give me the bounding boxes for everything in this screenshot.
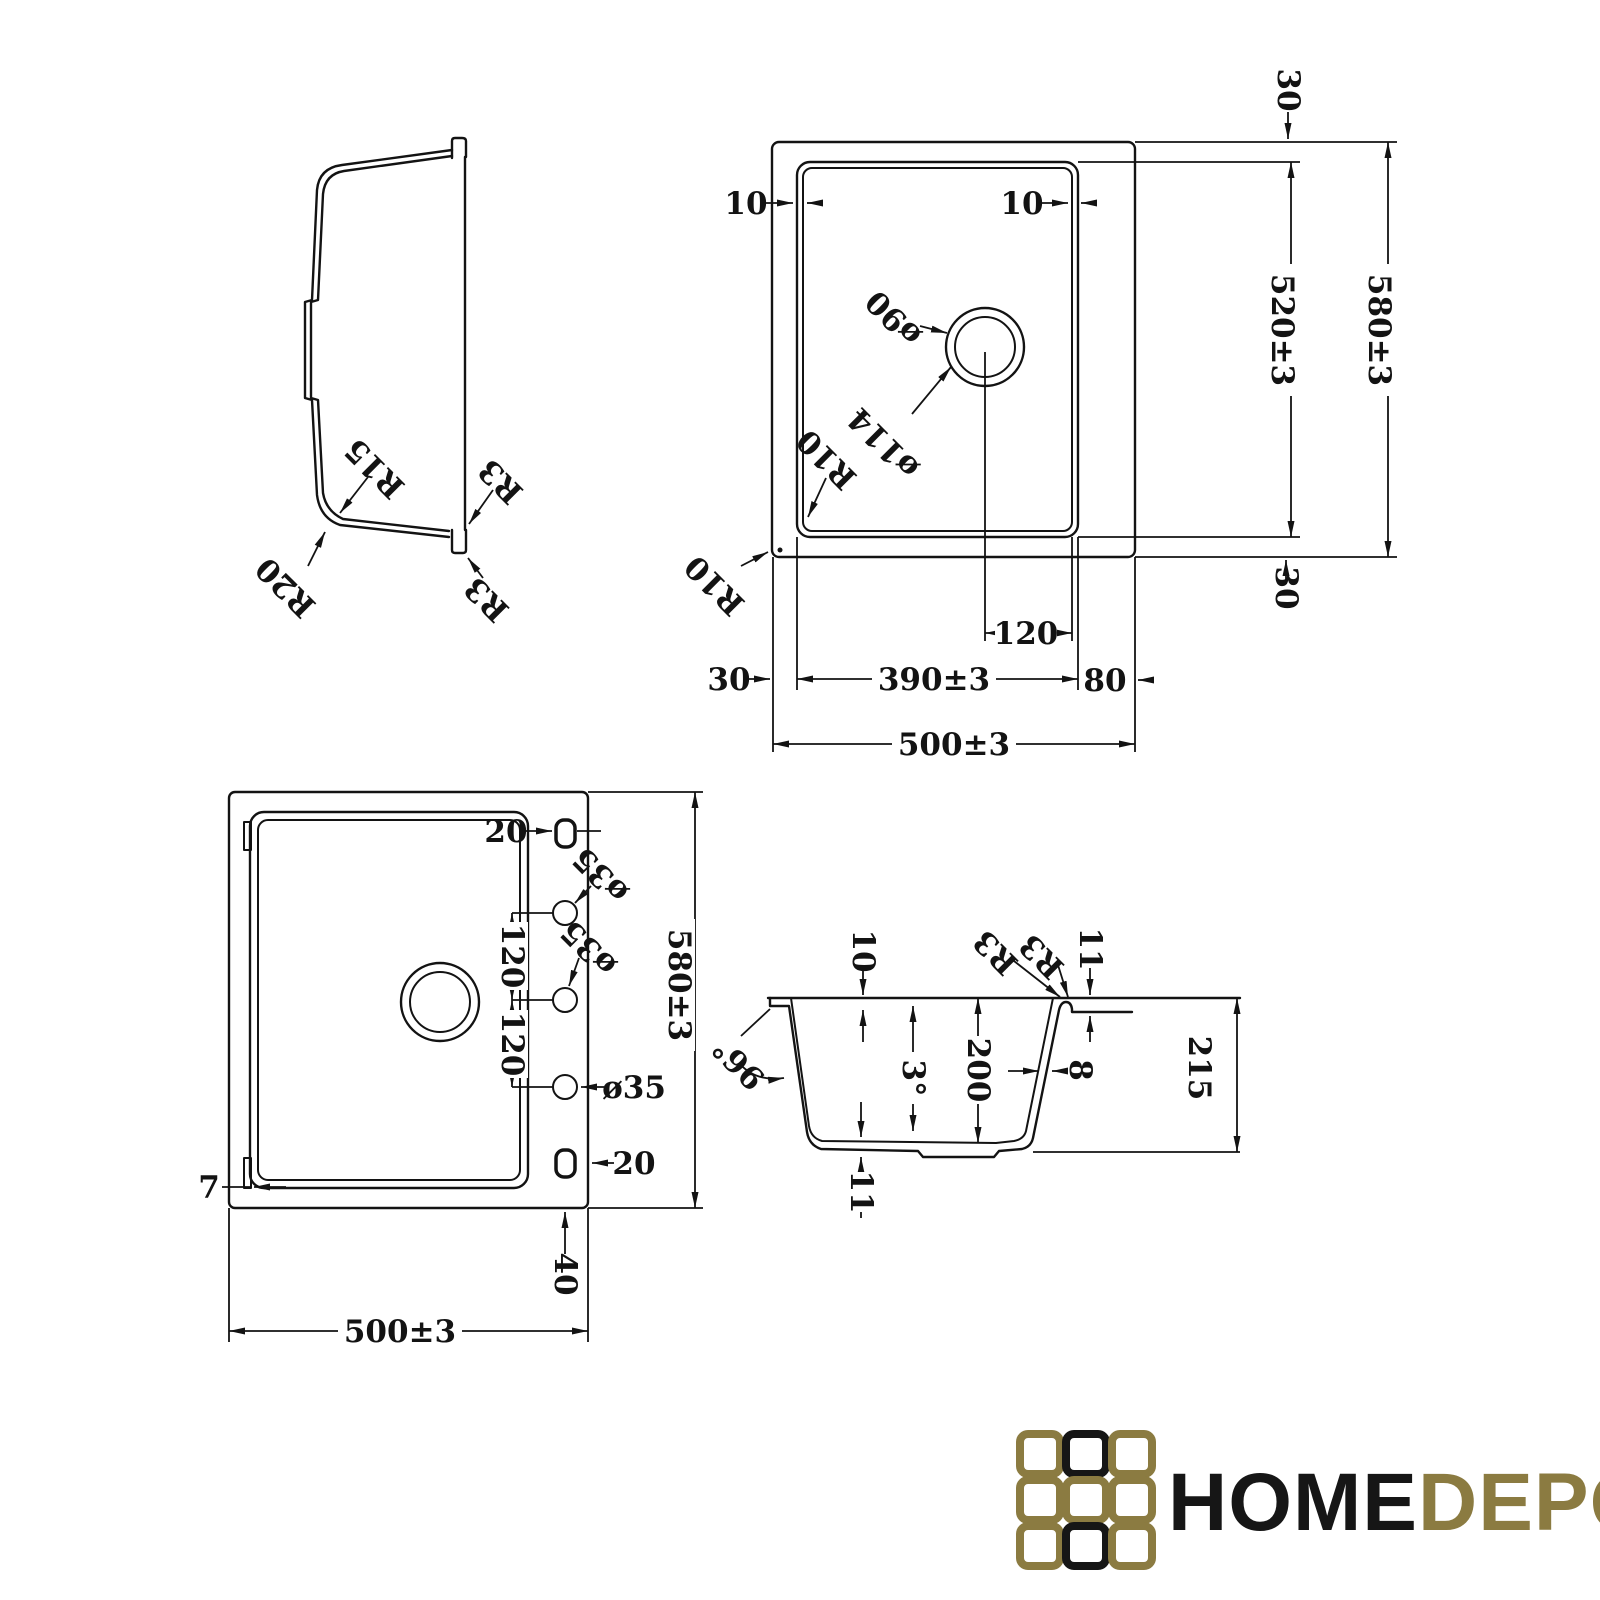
label-hole-top: ø35 [566, 840, 637, 911]
logo-grid-icon [1020, 1434, 1152, 1566]
leader-dot [778, 548, 783, 553]
drain-hole-inner [410, 972, 470, 1032]
dim-margin-left: 30 [707, 662, 750, 698]
sink-outline [772, 142, 1135, 557]
logo-square [1066, 1526, 1106, 1566]
logo-text-home: HOME [1168, 1457, 1418, 1548]
dim-wall-thickness: 8 [1062, 1059, 1098, 1081]
slot-bottom [556, 1150, 575, 1177]
logo-square [1020, 1480, 1060, 1520]
dim-overall-width: 500±3 [898, 727, 1010, 763]
dim-bowl-depth: 200 [960, 1038, 996, 1103]
logo-square [1112, 1526, 1152, 1566]
logo-square [1112, 1480, 1152, 1520]
dim-flange-thickness: 10 [845, 929, 881, 972]
top-view: 10 10 30 520±3 580±3 30 30 120 390±3 80 … [678, 68, 1397, 763]
logo-wordmark: HOMEDEPO [1168, 1457, 1600, 1548]
brand-logo: HOMEDEPO [1020, 1434, 1600, 1566]
label-r3-inner: R3 [471, 452, 530, 511]
leader-r10-bowl [808, 478, 826, 517]
logo-square [1020, 1434, 1060, 1474]
drain-hole-outer [401, 963, 479, 1041]
dim-bowl-width: 390±3 [878, 662, 990, 698]
slot-top [556, 820, 575, 847]
dim-hole-pitch-top: 120 [494, 924, 530, 989]
section-view: 10 3° 200 8 R3 R3 11 96° 215 11 [705, 923, 1240, 1218]
logo-square [1020, 1526, 1060, 1566]
logo-square [1112, 1434, 1152, 1474]
dim-slot-offset-bottom: 20 [612, 1146, 655, 1182]
sink-technical-drawing-page: R15 R20 R3 R3 10 10 30 5 [0, 0, 1600, 1600]
logo-square [1066, 1480, 1106, 1520]
dim-rim-thickness: 11 [1072, 927, 1108, 970]
leader-r20 [308, 532, 325, 566]
dim-overall-width: 500±3 [344, 1314, 456, 1350]
dim-hole-pitch-bottom: 120 [494, 1012, 530, 1077]
label-r10-outer: R10 [678, 548, 752, 622]
leader-drain-outer-d [912, 367, 951, 414]
ext-line [741, 1009, 770, 1036]
dim-overall-height: 215 [1181, 1036, 1217, 1101]
bowl-outer-outline [250, 812, 528, 1188]
profile-bottom-rim-tab [452, 530, 466, 553]
dim-ledge-right: 80 [1083, 663, 1126, 699]
dim-clip-width: 7 [198, 1170, 220, 1206]
dim-bottom-thickness: 11 [843, 1170, 879, 1213]
tap-hole-bottom [553, 1075, 577, 1099]
logo-text-depo: DEPO [1418, 1457, 1600, 1548]
dim-drain-offset: 120 [994, 616, 1059, 652]
label-r3-outer: R3 [457, 570, 516, 629]
dim-margin-top: 30 [1270, 68, 1306, 111]
dim-overall-length: 580±3 [1361, 274, 1397, 386]
dim-reveal-right: 10 [1000, 186, 1043, 222]
dim-reveal-left: 10 [724, 186, 767, 222]
bottom-view: 120 120 20 ø35 ø35 ø35 7 20 40 580±3 500… [198, 792, 703, 1350]
label-wall-angle: 96° [705, 1030, 772, 1097]
dim-bowl-length: 520±3 [1264, 274, 1300, 386]
technical-drawing-canvas: R15 R20 R3 R3 10 10 30 5 [0, 0, 1600, 1600]
dim-draft-angle: 3° [895, 1059, 931, 1096]
logo-square [1066, 1434, 1106, 1474]
label-drain-diameter: ø90 [859, 283, 930, 354]
side-profile-view: R15 R20 R3 R3 [249, 138, 531, 629]
profile-top-rim-tab [452, 138, 466, 158]
label-r20: R20 [249, 550, 323, 624]
dim-overall-length: 580±3 [661, 929, 697, 1041]
label-r15: R15 [338, 431, 412, 505]
label-hole-bottom: ø35 [602, 1070, 666, 1106]
dim-slot-offset-top: 20 [484, 814, 527, 850]
leader-r10-outer [741, 552, 768, 566]
tap-hole-middle [553, 988, 577, 1012]
dim-edge-offset: 40 [547, 1252, 583, 1295]
bowl-inner-outline [258, 820, 520, 1180]
label-hole-middle: ø35 [554, 913, 625, 984]
